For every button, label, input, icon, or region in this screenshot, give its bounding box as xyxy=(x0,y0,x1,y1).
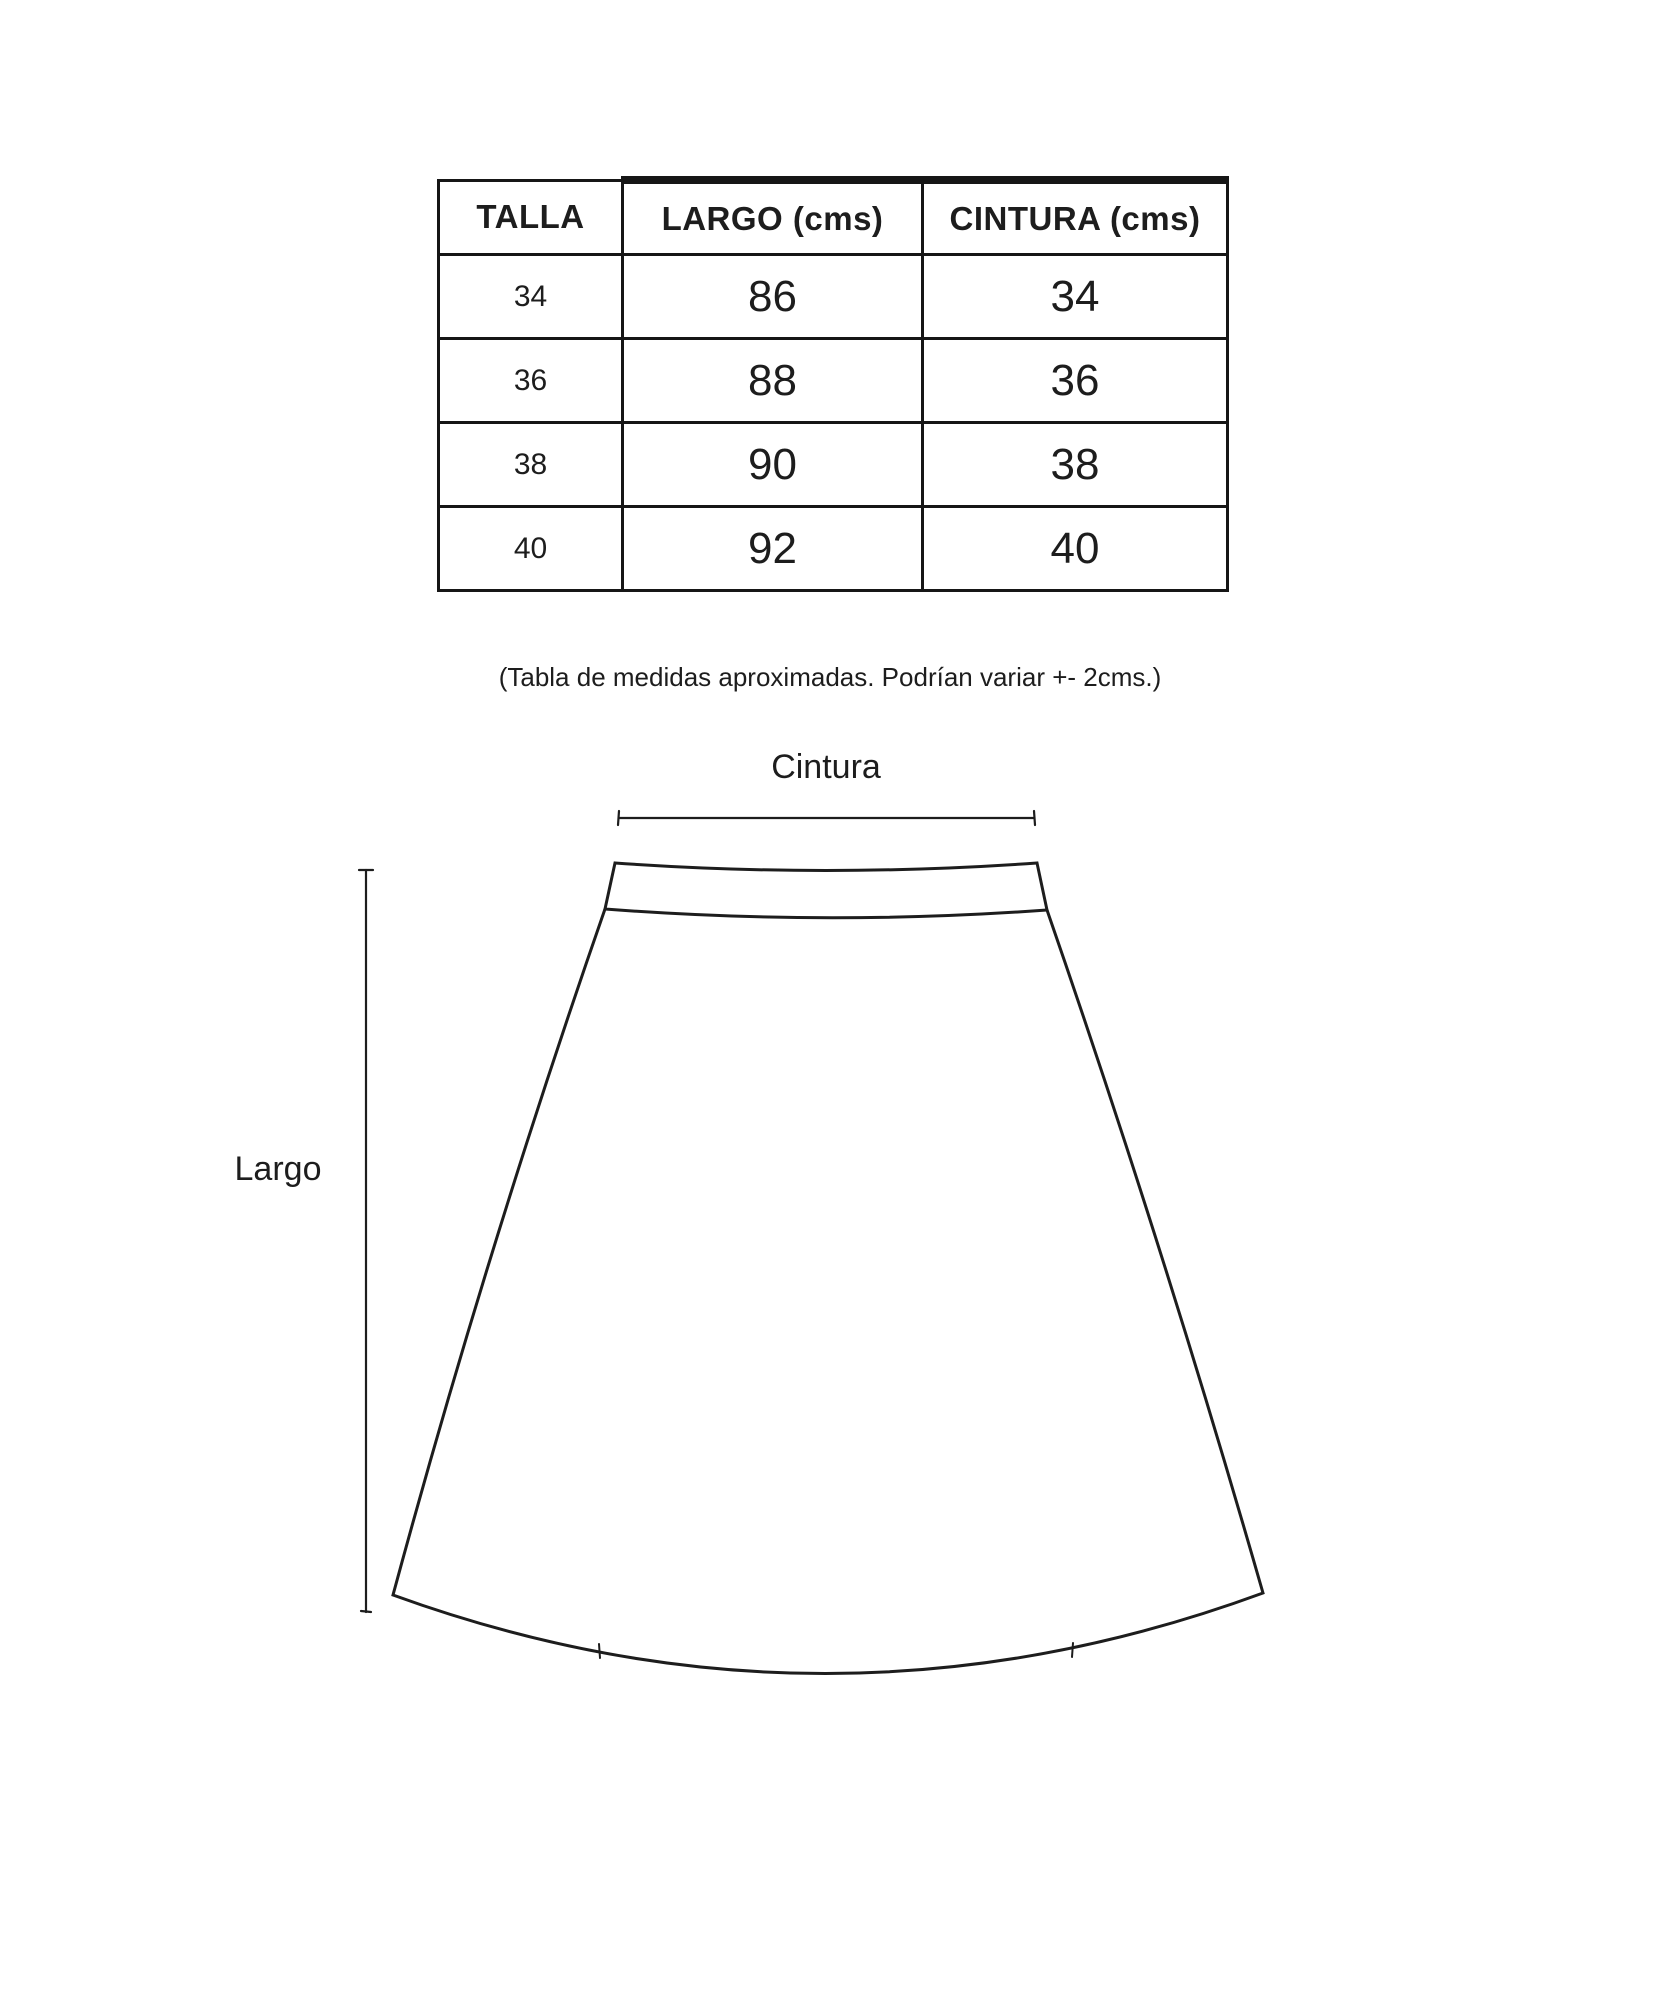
skirt-waistband xyxy=(605,863,1047,918)
hem-notch-left xyxy=(599,1644,600,1658)
waist-label: Cintura xyxy=(771,748,881,787)
size-guide-page: TALLA LARGO (cms) CINTURA (cms) 34 86 34… xyxy=(0,0,1655,2000)
hem-notch-right xyxy=(1072,1643,1073,1657)
waist-dimension-line xyxy=(618,811,1035,825)
length-dimension-line xyxy=(359,870,373,1612)
skirt-outline xyxy=(393,909,1263,1674)
skirt-diagram xyxy=(0,0,1655,2000)
length-label: Largo xyxy=(235,1150,322,1189)
